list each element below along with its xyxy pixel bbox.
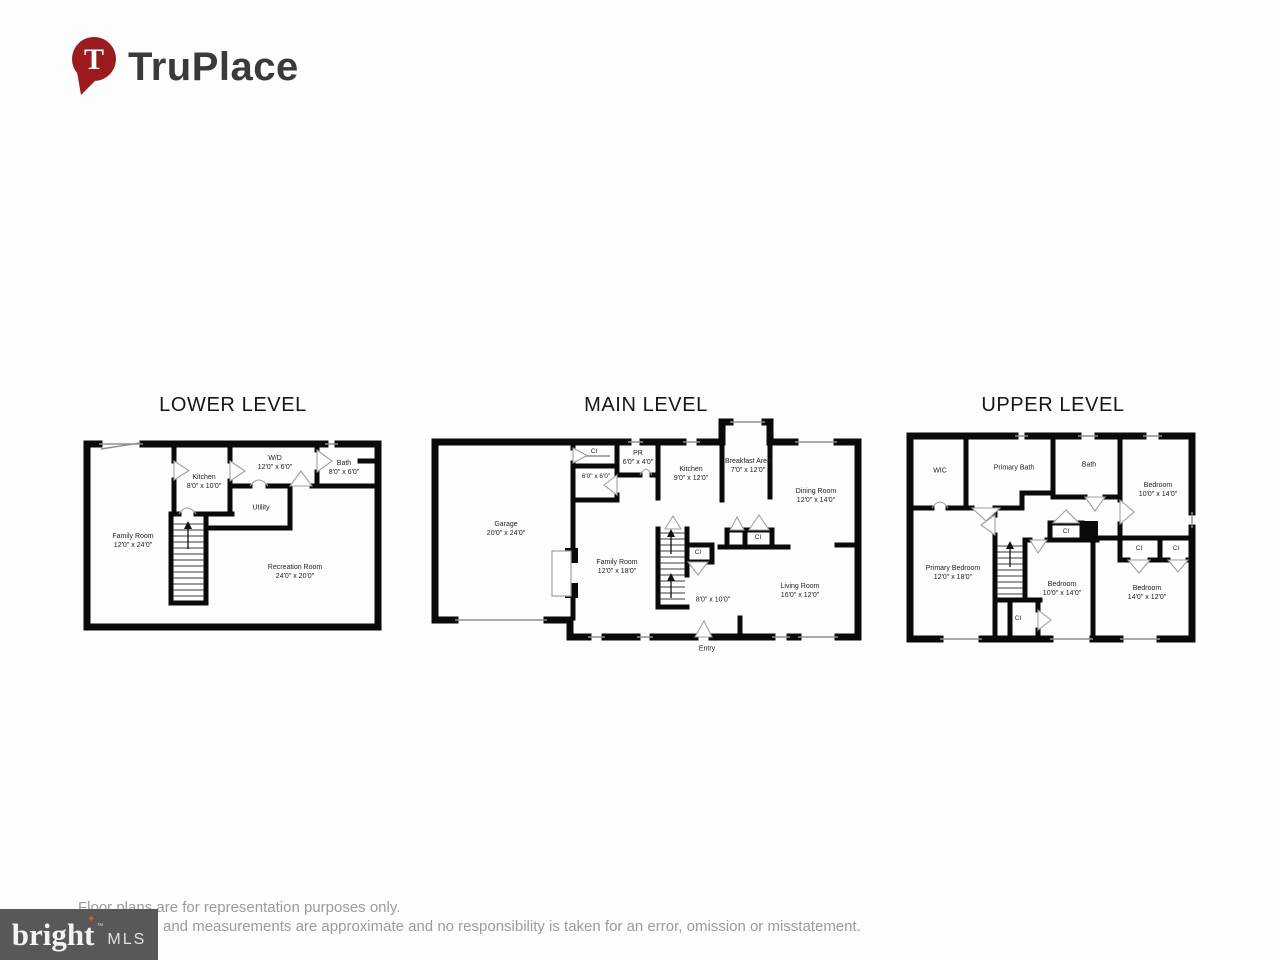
room-label-closet-tr2: CI bbox=[1173, 545, 1180, 553]
room-label-garage: Garage 20'0" x 24'0" bbox=[487, 520, 525, 538]
room-label-family-room-main: Family Room 12'0" x 18'0" bbox=[596, 558, 637, 576]
room-label-wd: W/D 12'0" x 6'0" bbox=[258, 454, 293, 472]
room-label-bath-upper: Bath bbox=[1082, 460, 1096, 469]
room-label-bedroom-top-right: Bedroom 10'0" x 14'0" bbox=[1139, 481, 1177, 499]
room-label-living-room: Living Room 16'0" x 12'0" bbox=[781, 582, 820, 600]
room-label-kitchen-main: Kitchen 9'0" x 12'0" bbox=[674, 465, 709, 483]
room-label-closet-stairs-main: CI bbox=[695, 549, 702, 557]
brightmls-brand-text: bright bbox=[12, 917, 95, 952]
room-label-wic: WIC bbox=[933, 466, 947, 475]
room-label-closet-hall-upper: CI bbox=[1063, 528, 1070, 536]
room-label-primary-bedroom: Primary Bedroom 12'0" x 18'0" bbox=[926, 564, 980, 582]
room-label-entry: Entry bbox=[699, 644, 715, 653]
room-label-primary-bath: Primary Bath bbox=[994, 463, 1034, 472]
room-label-closet-tr1: CI bbox=[1136, 545, 1143, 553]
room-label-utility: Utility bbox=[252, 503, 269, 512]
room-label-breakfast-area: Breakfast Area 7'0" x 12'0" bbox=[723, 457, 773, 475]
room-label-kitchen-lower: Kitchen 8'0" x 10'0" bbox=[187, 473, 222, 491]
brightmls-star-icon: ✦ bbox=[87, 915, 95, 925]
room-label-closet-stairs-upper: CI bbox=[1015, 615, 1022, 623]
brightmls-tm: ™ bbox=[96, 923, 103, 930]
room-label-mudroom-dims: 6'0" x 6'0" bbox=[582, 473, 610, 481]
room-label-bedroom-middle: Bedroom 10'0" x 14'0" bbox=[1043, 580, 1081, 598]
room-label-recreation-room: Recreation Room 24'0" x 20'0" bbox=[268, 563, 322, 581]
room-label-bedroom-bottom-right: Bedroom 14'0" x 12'0" bbox=[1128, 584, 1166, 602]
room-label-powder-room: PR 6'0" x 4'0" bbox=[623, 449, 654, 467]
room-label-bath-lower: Bath 8'0" x 6'0" bbox=[329, 459, 360, 477]
brightmls-suffix-text: MLS bbox=[107, 931, 146, 949]
room-label-closet-hall-main: CI bbox=[755, 534, 762, 542]
brightmls-logo: bright ✦ ™ MLS bbox=[0, 909, 158, 960]
room-label-closet-top-main: CI bbox=[591, 448, 598, 456]
room-label-stairs-dims-main: 8'0" x 10'0" bbox=[696, 595, 731, 604]
room-label-family-room-lower: Family Room 12'0" x 24'0" bbox=[112, 532, 153, 550]
room-label-dining-room: Dining Room 12'0" x 14'0" bbox=[796, 487, 836, 505]
